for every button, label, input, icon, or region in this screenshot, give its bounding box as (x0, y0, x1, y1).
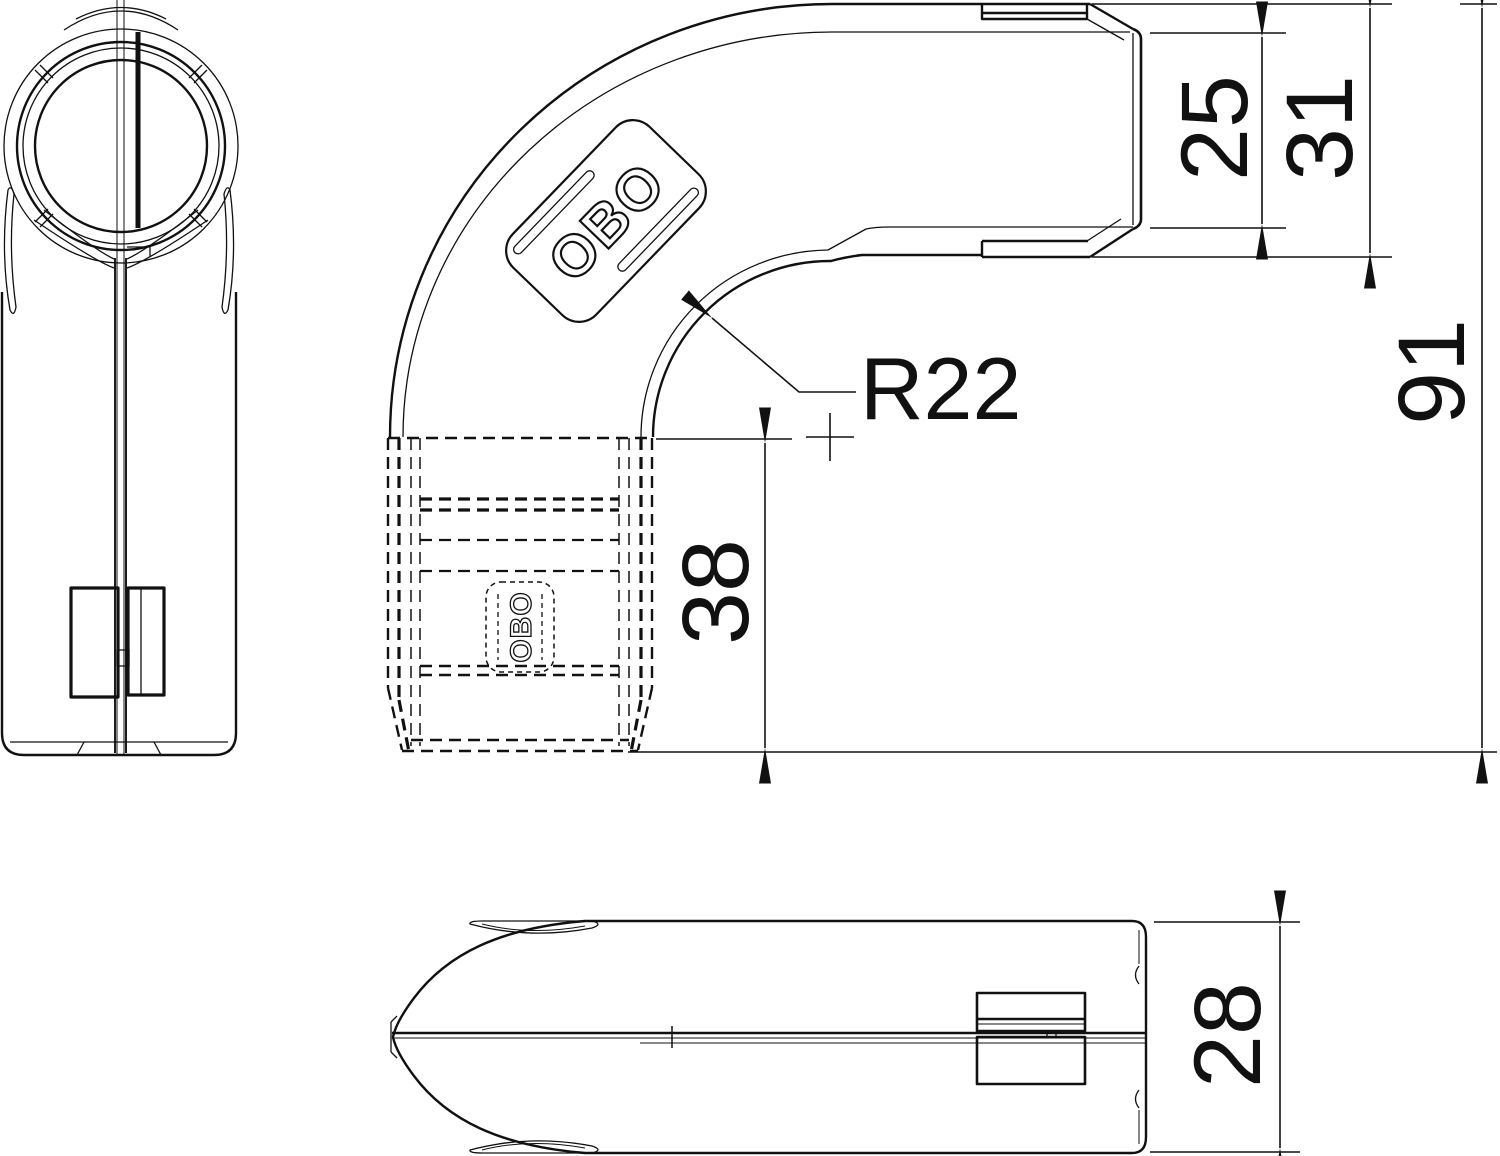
dimensions: 25 31 91 38 28 R22 (628, 4, 1497, 1152)
dimension-socket-outer: 31 (1267, 8, 1373, 253)
dimension-socket-inner: 25 (1162, 37, 1268, 224)
dimension-profile-height: 28 (1175, 926, 1281, 1148)
dim-label-28: 28 (1175, 982, 1281, 1088)
dimension-bend-radius: R22 (712, 318, 1021, 438)
dim-label-91: 91 (1379, 319, 1485, 425)
technical-drawing: OBO OBO (0, 0, 1500, 1156)
side-view-latches (71, 588, 164, 697)
side-view-funnel (34, 210, 208, 268)
bend-center-mark (806, 413, 854, 461)
bottom-view-end-details (1136, 930, 1140, 1144)
obo-badge-hidden: OBO (486, 582, 554, 672)
obo-badge-text: OBO (536, 150, 679, 295)
dim-label-31: 31 (1267, 75, 1373, 181)
obo-badge: OBO (496, 110, 716, 332)
bottom-view (391, 921, 1146, 1153)
side-view-socket-rings (4, 8, 238, 264)
hidden-socket-section: OBO (388, 438, 652, 752)
dimension-overall-length: 91 (1379, 8, 1485, 748)
dim-label-r22: R22 (860, 339, 1021, 438)
obo-badge-hidden-text: OBO (505, 591, 538, 662)
dimension-insertion-depth: 38 (663, 443, 769, 748)
dim-label-25: 25 (1162, 75, 1268, 181)
side-view (2, 0, 238, 755)
dim-label-38: 38 (663, 539, 769, 645)
socket-mouth (982, 4, 1141, 257)
